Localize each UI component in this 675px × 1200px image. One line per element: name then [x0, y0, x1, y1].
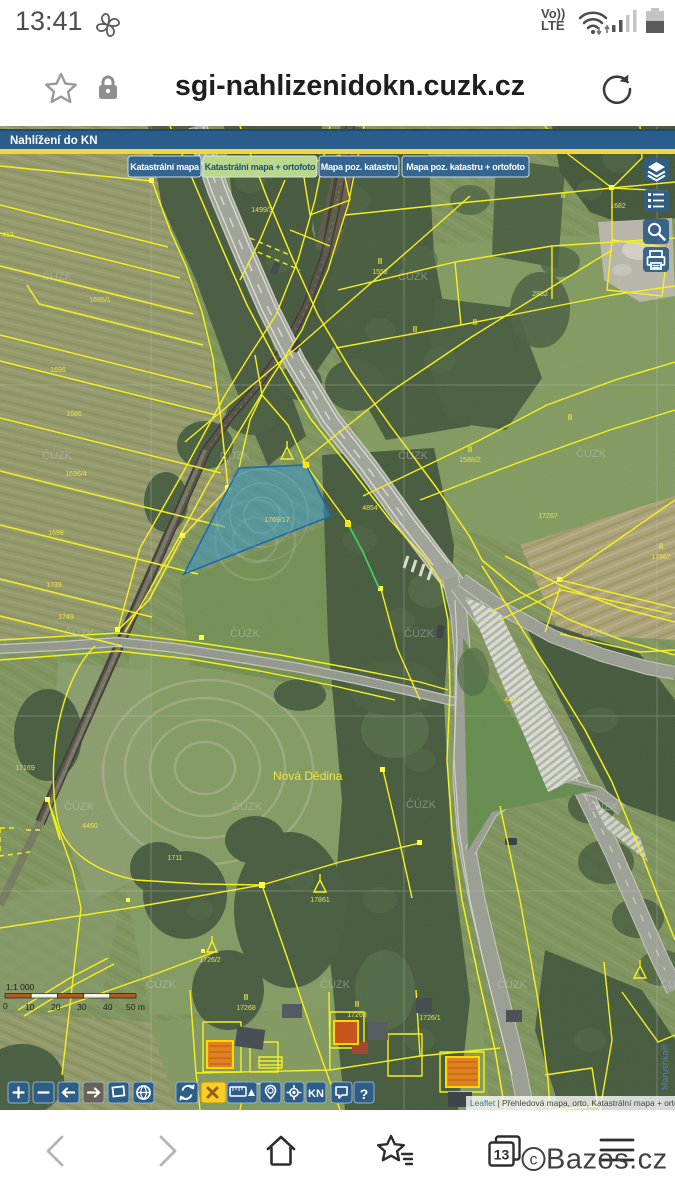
svg-text:ČÚZK: ČÚZK	[497, 978, 528, 991]
svg-text:17867: 17867	[651, 554, 671, 561]
svg-text:ČÚZK: ČÚZK	[398, 270, 429, 283]
svg-text:II: II	[561, 191, 565, 200]
svg-text:Katastrální mapa + ortofoto: Katastrální mapa + ortofoto	[205, 162, 316, 172]
svg-text:ČÚZK: ČÚZK	[406, 798, 437, 811]
svg-text:2882: 2882	[532, 291, 548, 298]
svg-text:ČÚZK: ČÚZK	[64, 800, 95, 813]
svg-text:13: 13	[494, 1147, 510, 1163]
svg-text:II: II	[413, 325, 417, 334]
svg-text:Mapa poz. katastru: Mapa poz. katastru	[321, 162, 398, 172]
svg-text:ČÚZK: ČÚZK	[660, 978, 675, 991]
svg-text:ČÚZK: ČÚZK	[146, 978, 177, 991]
svg-text:KN: KN	[308, 1088, 324, 1100]
svg-text:4460: 4460	[82, 823, 98, 830]
svg-text:Katastrální mapa: Katastrální mapa	[130, 162, 200, 172]
svg-text:II: II	[378, 257, 382, 266]
svg-text:ČÚZK: ČÚZK	[64, 627, 95, 640]
svg-text:1:1 000: 1:1 000	[6, 982, 35, 992]
svg-text:17269: 17269	[347, 1012, 367, 1019]
svg-text:ČÚZK: ČÚZK	[404, 627, 435, 640]
svg-text:1685/1: 1685/1	[89, 297, 111, 304]
svg-text:Nová Dědina: Nová Dědina	[273, 769, 343, 783]
svg-text:ČÚZK: ČÚZK	[232, 800, 263, 813]
svg-text:4854: 4854	[362, 505, 378, 512]
svg-text:1686: 1686	[66, 411, 82, 418]
svg-text:ČÚZK: ČÚZK	[230, 627, 261, 640]
svg-text:1749: 1749	[58, 614, 74, 621]
svg-text:1698: 1698	[48, 530, 64, 537]
svg-text:ČÚZK: ČÚZK	[320, 978, 351, 991]
svg-text:413: 413	[2, 232, 14, 239]
svg-text:17267: 17267	[538, 513, 558, 520]
svg-text:II: II	[659, 542, 663, 551]
svg-text:17268: 17268	[236, 1005, 256, 1012]
svg-text:1696: 1696	[50, 367, 66, 374]
svg-text:ČÚZK: ČÚZK	[398, 449, 429, 462]
svg-text:ČÚZK: ČÚZK	[576, 447, 607, 460]
svg-text:1696/4: 1696/4	[65, 471, 87, 478]
svg-text:Bazos.cz: Bazos.cz	[546, 1144, 668, 1176]
svg-text:1711: 1711	[167, 855, 182, 862]
svg-text:II: II	[468, 445, 472, 454]
svg-text:II: II	[568, 413, 572, 422]
svg-text:c: c	[530, 1152, 538, 1169]
svg-text:Marushka®: Marushka®	[660, 1043, 670, 1090]
svg-text:ČÚZK: ČÚZK	[582, 627, 613, 640]
svg-text:40: 40	[103, 1002, 113, 1012]
svg-text:Nahlížení do KN: Nahlížení do KN	[10, 135, 98, 147]
svg-text:1588/2: 1588/2	[459, 457, 481, 464]
svg-text:1726/1: 1726/1	[419, 1015, 441, 1022]
svg-text:1499/3: 1499/3	[251, 207, 273, 214]
svg-text:1552: 1552	[372, 269, 388, 276]
svg-text:1769/17: 1769/17	[264, 517, 289, 524]
svg-text:Mapa poz. katastru + ortofoto: Mapa poz. katastru + ortofoto	[406, 162, 525, 172]
svg-text:0: 0	[3, 1001, 8, 1011]
svg-text:1726/2: 1726/2	[199, 957, 221, 964]
svg-text:ČÚZK: ČÚZK	[42, 449, 73, 462]
svg-text:50 m: 50 m	[126, 1002, 145, 1012]
svg-text:17861: 17861	[310, 897, 330, 904]
svg-text:1739: 1739	[46, 582, 62, 589]
svg-text:10: 10	[25, 1002, 35, 1012]
svg-text:II: II	[473, 318, 477, 327]
svg-text:Leaflet | Přehledová mapa, ort: Leaflet | Přehledová mapa, orto, Katastr…	[470, 1098, 675, 1108]
svg-text:?: ?	[360, 1086, 369, 1102]
svg-text:ČÚZK: ČÚZK	[220, 449, 251, 462]
svg-text:1682: 1682	[610, 203, 626, 210]
svg-text:ČÚZK: ČÚZK	[588, 800, 619, 813]
svg-text:ČÚZK: ČÚZK	[42, 270, 73, 283]
svg-text:20: 20	[51, 1002, 61, 1012]
svg-text:17169: 17169	[15, 765, 35, 772]
svg-text:II: II	[244, 993, 248, 1002]
svg-text:II: II	[355, 1000, 359, 1009]
svg-text:30: 30	[77, 1002, 87, 1012]
svg-text:4487: 4487	[504, 697, 520, 704]
